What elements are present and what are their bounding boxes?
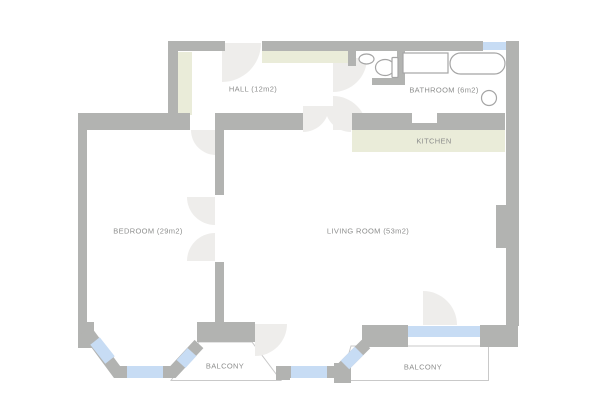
bay-corner-block-f	[362, 325, 408, 347]
living-room-label: LIVING ROOM (53m2)	[327, 227, 409, 236]
bathtub-icon	[450, 53, 505, 74]
balcony-left-label: BALCONY	[206, 362, 244, 371]
kitchen-label: KITCHEN	[416, 137, 451, 146]
hall-wardrobe-left	[178, 52, 192, 115]
hall-top-wall-right	[262, 41, 352, 51]
bedroom-door-swing-icon	[191, 130, 216, 155]
bedroom-label: BEDROOM (29m2)	[113, 227, 183, 236]
hall-wardrobe-top	[262, 51, 348, 63]
bathroom-top-wall	[352, 41, 483, 51]
hall-living-door-swing-right-icon	[325, 106, 351, 132]
washing-machine-icon	[403, 53, 448, 73]
bedroom-bay-window-right	[181, 352, 192, 364]
toilet-tank-icon	[392, 58, 398, 78]
bathroom-window	[483, 42, 507, 50]
balcony-right-label: BALCONY	[404, 363, 442, 372]
hall-living-door-swing-left-icon	[303, 106, 329, 132]
bedroom-living-door-swing-bottom-icon	[187, 233, 215, 261]
bedroom-left-wall	[78, 113, 87, 325]
right-wall-pilaster	[496, 205, 506, 248]
living-balcony-door-swing-icon	[423, 291, 457, 325]
stool-icon	[482, 91, 497, 106]
bedroom-living-wall-lower	[215, 262, 224, 323]
entry-door-swing-icon	[222, 43, 261, 82]
bedroom-living-door-swing-top-icon	[187, 197, 215, 225]
sink-icon	[359, 54, 374, 64]
toilet-nook-bottom-wall	[372, 78, 405, 85]
hall-label: HALL (12m2)	[229, 85, 277, 94]
bathroom-left-wall	[348, 41, 356, 66]
right-outer-wall	[506, 41, 519, 326]
bathroom-wall-niche	[412, 113, 437, 123]
bedroom-bay-window-left	[95, 341, 110, 360]
floor-plan: HALL (12m2) BATHROOM (6m2) KITCHEN BEDRO…	[0, 0, 600, 416]
hall-bottom-wall	[215, 113, 303, 130]
bathroom-label: BATHROOM (6m2)	[409, 86, 478, 95]
floor-plan-drawing	[0, 0, 600, 416]
bottom-right-corner-block	[480, 325, 518, 347]
hall-left-wall	[168, 41, 178, 115]
bedroom-living-wall-upper	[215, 130, 224, 195]
center-pillar	[197, 322, 255, 342]
left-balcony-door-swing-icon	[255, 324, 287, 356]
bedroom-top-wall	[78, 113, 190, 130]
living-bay-top-window	[408, 326, 480, 337]
